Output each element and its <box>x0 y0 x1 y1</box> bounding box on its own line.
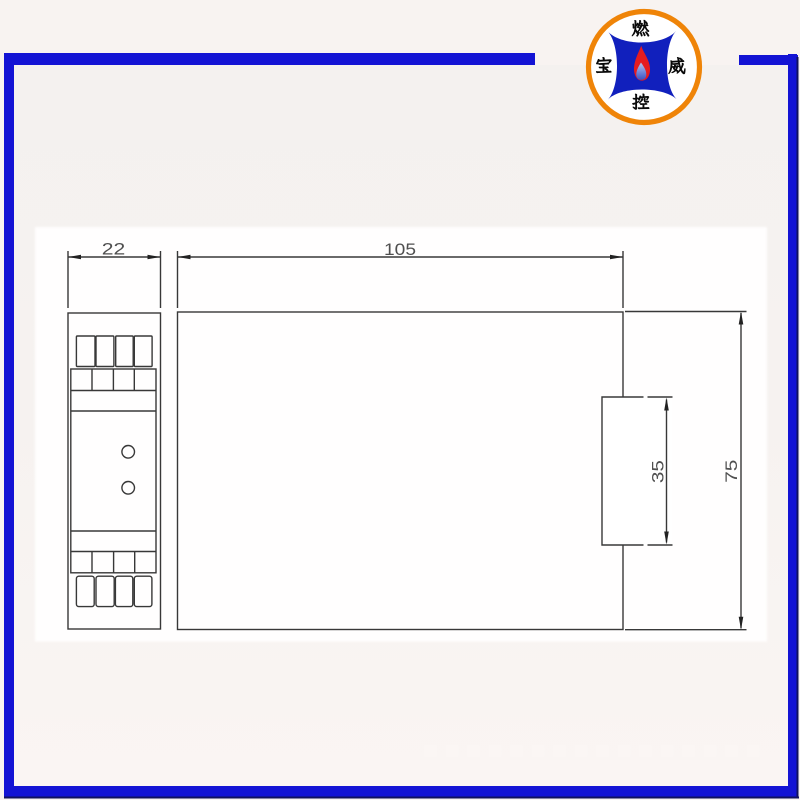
svg-text:35: 35 <box>649 460 668 483</box>
svg-text:22: 22 <box>102 240 126 259</box>
svg-text:75: 75 <box>722 460 741 483</box>
svg-text:105: 105 <box>384 240 416 259</box>
